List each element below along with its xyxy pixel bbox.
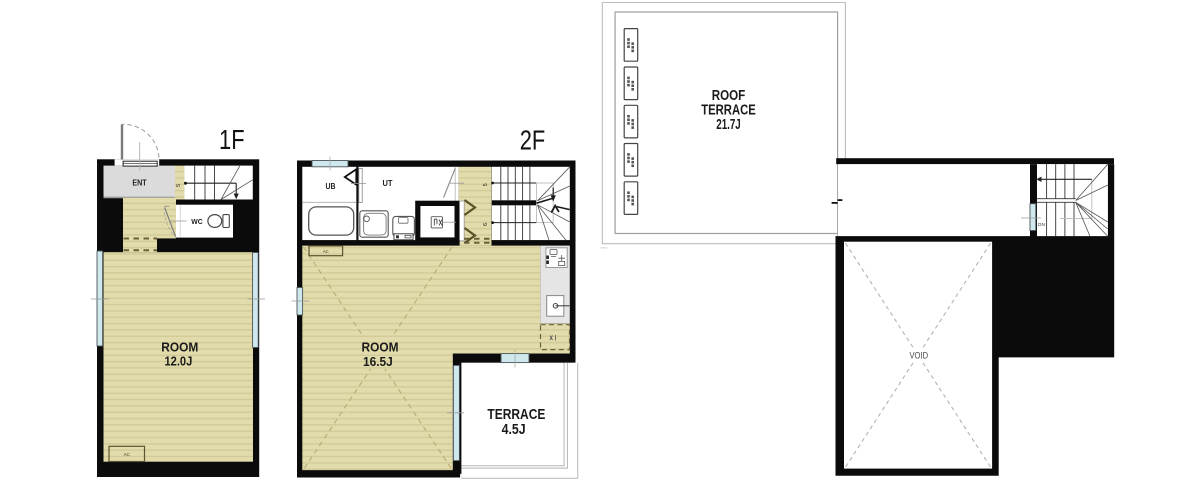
svg-text:16.5J: 16.5J — [363, 354, 393, 369]
svg-text:DN: DN — [1038, 222, 1045, 228]
svg-text:1F: 1F — [219, 124, 245, 155]
svg-text:5: 5 — [176, 184, 182, 187]
svg-text:ROOM: ROOM — [362, 340, 399, 355]
svg-text:UT: UT — [383, 179, 393, 188]
svg-text:5: 5 — [483, 183, 489, 186]
svg-text:AC: AC — [124, 452, 131, 457]
svg-text:21.7J: 21.7J — [716, 117, 741, 133]
svg-text:12.0J: 12.0J — [165, 354, 193, 369]
svg-text:ENT: ENT — [132, 178, 146, 187]
svg-text:AC: AC — [323, 249, 329, 254]
svg-text:4.5J: 4.5J — [502, 421, 526, 438]
svg-text:ROOM: ROOM — [161, 340, 198, 355]
svg-text:UB: UB — [326, 182, 336, 191]
svg-text:VOID: VOID — [909, 351, 928, 362]
svg-text:6: 6 — [483, 223, 489, 226]
svg-text:WC: WC — [191, 217, 203, 226]
svg-text:2F: 2F — [520, 124, 546, 155]
